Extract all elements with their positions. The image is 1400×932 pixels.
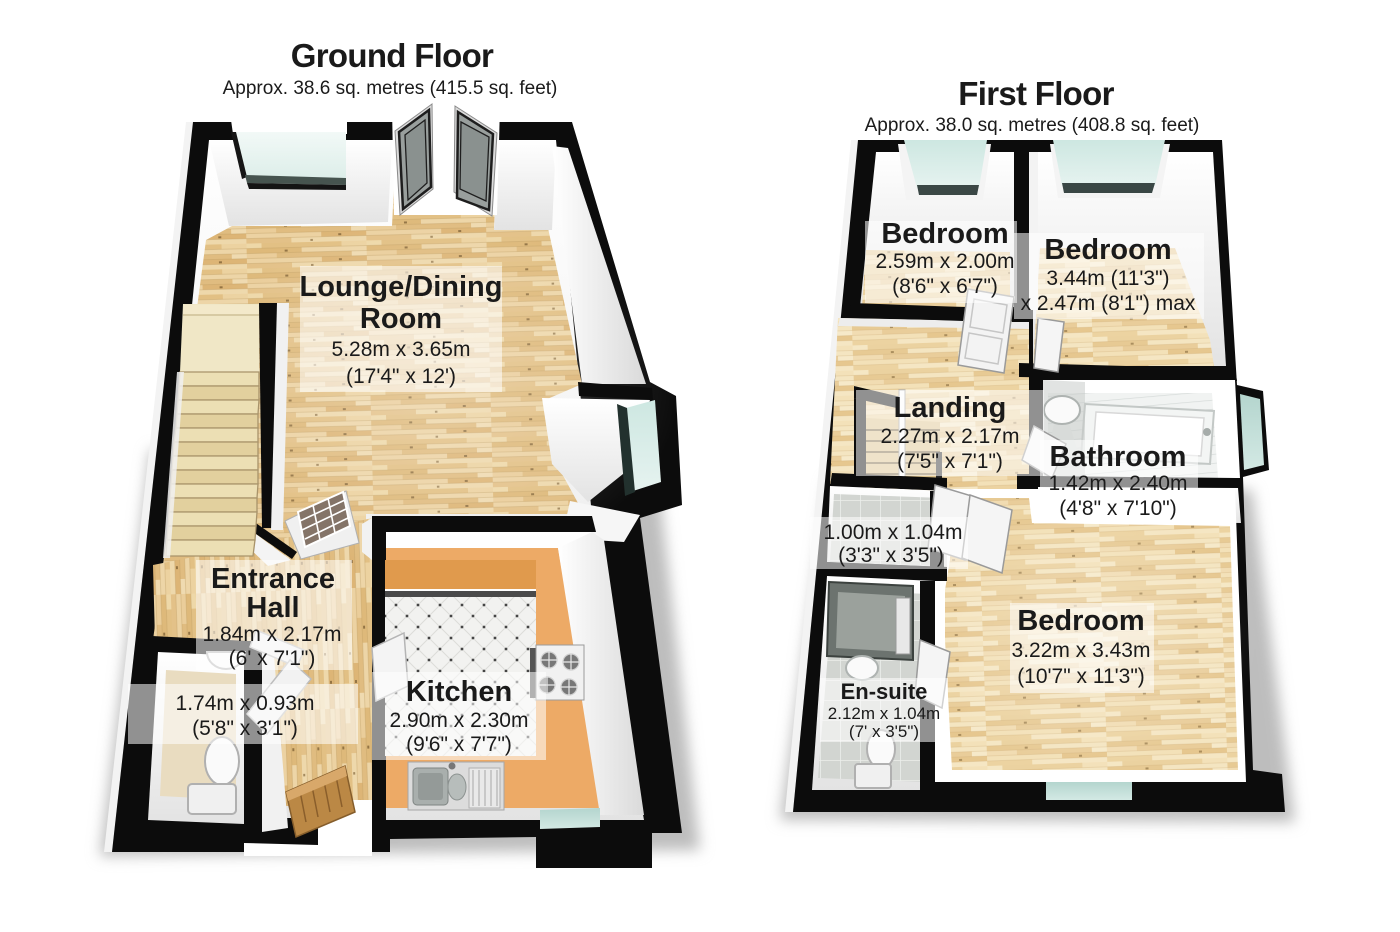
svg-text:Entrance: Entrance [211,563,335,595]
svg-text:3.44m (11'3"): 3.44m (11'3") [1046,267,1169,290]
svg-text:2.12m x 1.04m: 2.12m x 1.04m [828,704,940,723]
svg-text:Ground Floor: Ground Floor [291,37,494,74]
svg-text:Landing: Landing [894,392,1007,424]
svg-text:(7' x 3'5"): (7' x 3'5") [849,722,919,741]
svg-text:1.42m x 2.40m: 1.42m x 2.40m [1049,472,1188,495]
svg-text:Room: Room [360,303,442,335]
svg-text:En-suite: En-suite [841,679,928,704]
svg-text:x 2.47m (8'1") max: x 2.47m (8'1") max [1021,292,1196,315]
svg-text:Lounge/Dining: Lounge/Dining [300,271,503,303]
svg-text:(5'8" x 3'1"): (5'8" x 3'1") [192,717,298,740]
svg-text:3.22m x 3.43m: 3.22m x 3.43m [1012,639,1151,662]
svg-text:Approx. 38.0 sq. metres (408.8: Approx. 38.0 sq. metres (408.8 sq. feet) [865,115,1200,136]
svg-text:2.90m x 2.30m: 2.90m x 2.30m [390,709,529,732]
svg-text:1.74m x 0.93m: 1.74m x 0.93m [176,692,315,715]
svg-text:Bedroom: Bedroom [1044,234,1171,266]
svg-text:Hall: Hall [246,592,299,624]
svg-text:(8'6" x 6'7"): (8'6" x 6'7") [892,275,998,298]
svg-text:First Floor: First Floor [958,75,1114,112]
svg-text:2.59m x 2.00m: 2.59m x 2.00m [876,250,1015,273]
svg-text:1.84m x 2.17m: 1.84m x 2.17m [203,623,342,646]
svg-text:1.00m x 1.04m: 1.00m x 1.04m [824,521,963,544]
svg-text:Bathroom: Bathroom [1050,441,1187,473]
svg-text:(6' x 7'1"): (6' x 7'1") [229,647,316,670]
svg-text:(17'4" x 12'): (17'4" x 12') [346,365,456,388]
svg-text:Bedroom: Bedroom [881,218,1008,250]
svg-text:(10'7" x 11'3"): (10'7" x 11'3") [1017,665,1145,688]
svg-text:Approx. 38.6 sq. metres (415.5: Approx. 38.6 sq. metres (415.5 sq. feet) [223,78,558,99]
svg-text:(3'3" x 3'5"): (3'3" x 3'5") [838,544,944,567]
svg-text:Bedroom: Bedroom [1017,605,1144,637]
svg-text:5.28m x 3.65m: 5.28m x 3.65m [332,338,471,361]
svg-text:(7'5" x 7'1"): (7'5" x 7'1") [897,450,1003,473]
svg-text:(4'8" x 7'10"): (4'8" x 7'10") [1059,497,1176,520]
svg-text:(9'6" x 7'7"): (9'6" x 7'7") [406,733,512,756]
svg-text:Kitchen: Kitchen [406,676,512,708]
svg-text:2.27m x 2.17m: 2.27m x 2.17m [881,425,1020,448]
